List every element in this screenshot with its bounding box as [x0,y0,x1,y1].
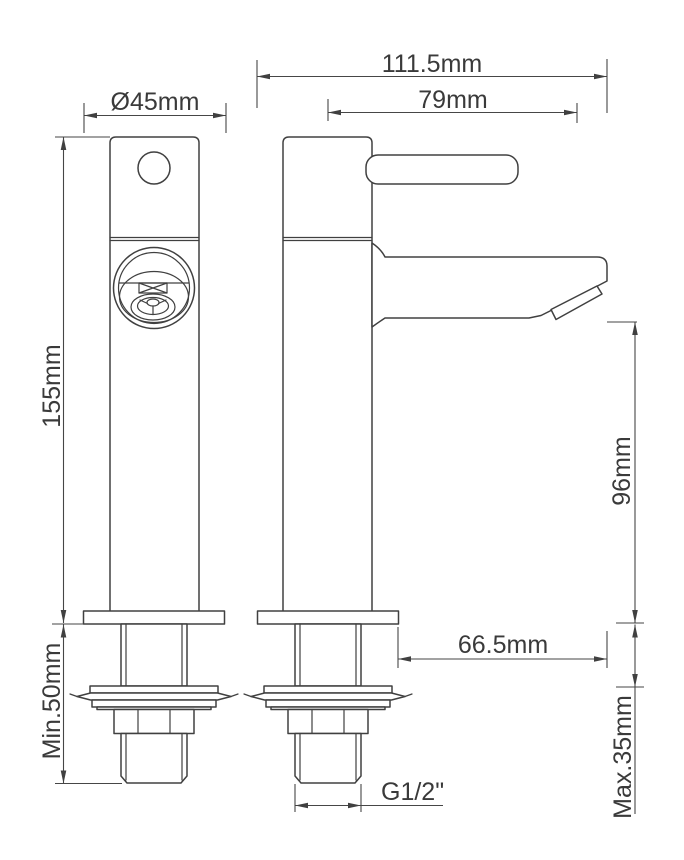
faucet-technical-drawing: Ø45mm 111.5mm 79mm 155mm Min.50mm 96mm [0,0,684,860]
dim-label-min-mounting-depth: Min.50mm [38,643,66,760]
arrow-left [257,74,270,80]
arrow-left [328,110,341,116]
arrow-up [632,625,638,638]
dim-label-spout-reach: 79mm [418,86,487,114]
arrow-down [632,674,638,687]
arrow-left [295,803,308,809]
dim-label-overall-depth: 111.5mm [382,50,483,78]
front-body [110,137,199,612]
arrow-right [213,113,226,119]
front-base-plate [84,611,225,624]
dim-label-thread-size: G1/2" [381,778,444,806]
side-spout [372,243,607,327]
arrow-up [632,322,638,335]
dim-max-deck-thickness: Max.35mm [609,625,644,819]
arrow-up [61,137,67,150]
dim-spout-height: 96mm [607,322,644,623]
side-handle-lever [366,155,518,184]
arrow-left [398,656,411,662]
dim-label-spout-height: 96mm [608,436,636,505]
side-thread-pipe [295,734,361,784]
dim-body-height: 155mm [38,137,110,624]
dim-label-spout-projection: 66.5mm [458,631,548,659]
arrow-up [61,625,67,638]
front-thread-pipe [121,734,187,784]
side-lock-nut [288,710,368,734]
dim-spout-projection: 66.5mm [398,627,607,668]
arrow-down [632,610,638,623]
arrow-left [84,113,97,119]
dim-label-body-height: 155mm [38,344,66,427]
arrow-down [61,771,67,784]
dim-label-base-diameter: Ø45mm [111,88,200,116]
side-shank [244,624,412,783]
arrow-right [564,110,577,116]
arrow-down [61,610,67,623]
arrow-right [348,803,361,809]
arrow-right [594,656,607,662]
drawing-canvas: Ø45mm 111.5mm 79mm 155mm Min.50mm 96mm [0,0,684,860]
dim-label-max-deck-thickness: Max.35mm [609,695,637,819]
dim-base-diameter: Ø45mm [84,88,226,133]
dim-spout-reach: 79mm [328,86,577,123]
side-base-plate [258,611,399,624]
arrow-right [594,74,607,80]
side-view [244,137,607,783]
front-view [70,137,238,783]
front-shank [70,624,238,783]
front-lock-nut [114,710,194,734]
side-body [283,137,372,612]
